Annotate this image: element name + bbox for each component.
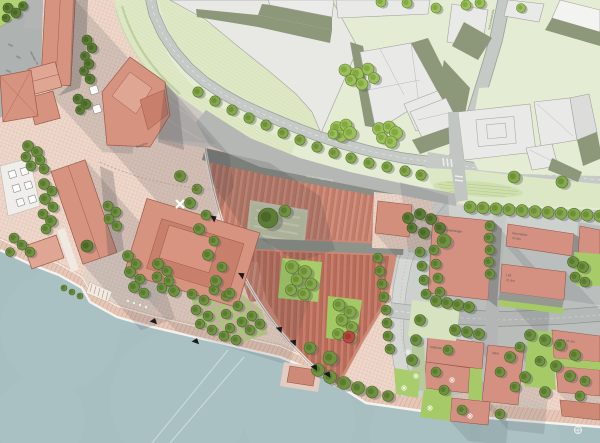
svg-text:Lidl: Lidl [506,273,512,278]
